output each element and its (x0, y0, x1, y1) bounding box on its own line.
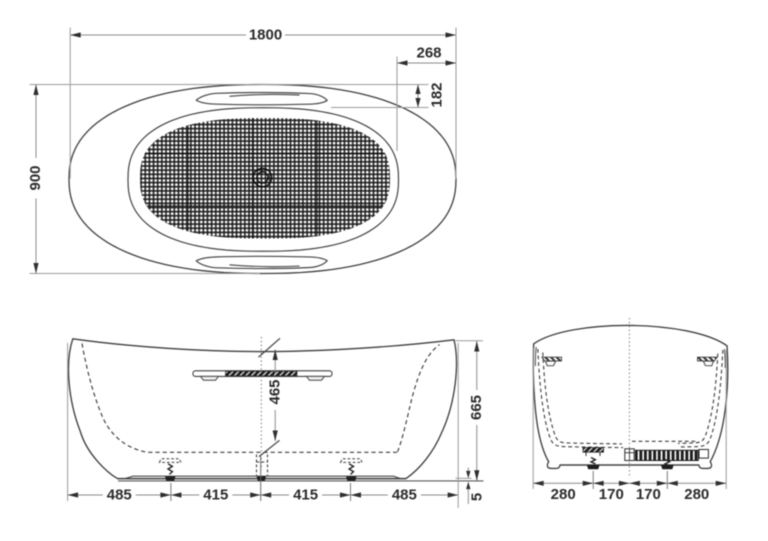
svg-text:415: 415 (203, 487, 228, 504)
svg-text:465: 465 (267, 379, 284, 404)
svg-text:415: 415 (293, 487, 318, 504)
svg-text:1800: 1800 (249, 27, 282, 44)
svg-text:182: 182 (429, 82, 446, 107)
svg-text:900: 900 (27, 165, 44, 190)
svg-text:280: 280 (551, 486, 576, 503)
svg-text:485: 485 (392, 487, 417, 504)
svg-text:485: 485 (107, 487, 132, 504)
svg-text:5: 5 (469, 493, 486, 501)
svg-text:268: 268 (416, 45, 441, 62)
svg-text:665: 665 (468, 395, 485, 420)
svg-text:170: 170 (636, 486, 661, 503)
svg-text:280: 280 (684, 486, 709, 503)
svg-text:170: 170 (599, 486, 624, 503)
